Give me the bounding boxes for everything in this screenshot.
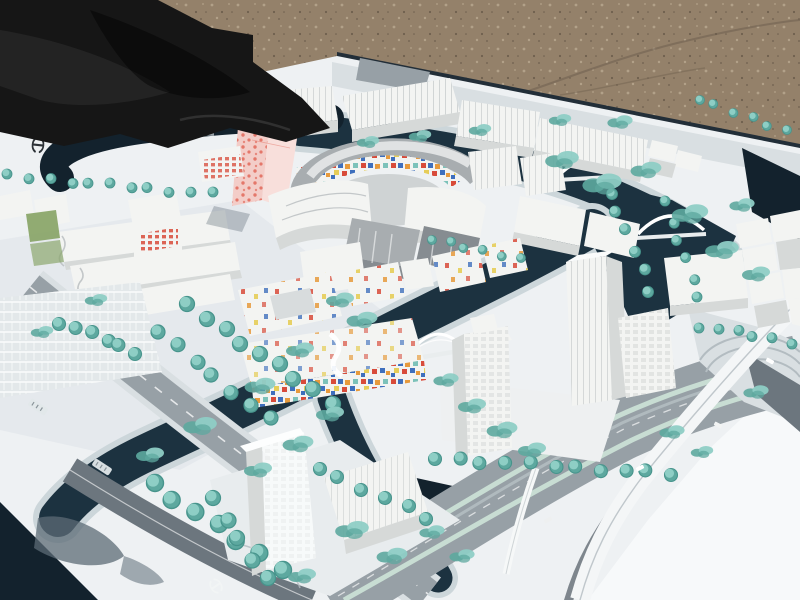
model-tree: [671, 235, 681, 245]
model-tree: [692, 292, 702, 302]
model-tree: [245, 553, 260, 568]
model-tree: [517, 254, 526, 263]
model-tree: [69, 322, 82, 335]
model-tree: [68, 178, 78, 188]
model-tree: [186, 187, 196, 197]
model-tree: [224, 386, 238, 400]
model-tree: [264, 411, 278, 425]
model-tree: [164, 187, 174, 197]
model-tree: [762, 122, 771, 131]
model-tree: [428, 236, 437, 245]
model-tree: [24, 174, 34, 184]
model-tree: [550, 461, 563, 474]
model-tree: [230, 531, 245, 546]
model-tree: [355, 484, 368, 497]
model-tree: [499, 456, 512, 469]
model-tree: [286, 372, 301, 387]
model-tree: [696, 96, 705, 105]
model-tree: [261, 571, 276, 586]
model-tree: [681, 253, 691, 263]
model-tree: [630, 246, 641, 257]
model-tree: [331, 471, 344, 484]
model-tree: [497, 252, 506, 261]
model-tree: [221, 513, 236, 528]
model-tree: [665, 469, 678, 482]
model-tree: [204, 368, 218, 382]
model-tree: [187, 504, 204, 521]
model-tree: [610, 206, 621, 217]
model-tree: [86, 326, 99, 339]
model-tree: [747, 332, 757, 342]
model-tree: [163, 492, 180, 509]
model-tree: [429, 453, 442, 466]
model-tree: [83, 178, 93, 188]
model-tree: [2, 169, 12, 179]
model-tree: [524, 456, 537, 469]
grass-strip: [26, 210, 60, 242]
model-tree: [220, 322, 235, 337]
model-tree: [151, 325, 165, 339]
model-tree: [403, 500, 416, 513]
model-tree: [569, 460, 582, 473]
model-tree: [208, 187, 218, 197]
model-tree: [379, 492, 392, 505]
model-tree: [420, 513, 433, 526]
model-tree: [478, 245, 487, 254]
model-tree: [454, 452, 467, 465]
model-tree: [709, 100, 718, 109]
model-tree: [46, 174, 56, 184]
model-tree: [206, 491, 221, 506]
model-tree: [53, 318, 66, 331]
model-tree: [749, 113, 758, 122]
model-tree: [105, 178, 115, 188]
model-tree: [620, 464, 633, 477]
model-tree: [729, 109, 738, 118]
model-tree: [643, 287, 654, 298]
model-tree: [306, 382, 321, 397]
model-tree: [620, 224, 631, 235]
model-tree: [171, 338, 185, 352]
model-tree: [447, 237, 456, 246]
model-tree: [233, 337, 248, 352]
model-tree: [147, 475, 164, 492]
model-tree: [734, 325, 744, 335]
model-tree: [244, 398, 258, 412]
model-tree: [314, 463, 327, 476]
model-tree: [142, 183, 152, 193]
model-tree: [690, 275, 700, 285]
model-tree: [660, 196, 670, 206]
model-tree: [594, 465, 607, 478]
model-tree: [640, 264, 651, 275]
model-tree: [200, 312, 215, 327]
model-tree: [273, 357, 288, 372]
model-tree: [473, 457, 486, 470]
model-tree: [694, 323, 704, 333]
model-tree: [767, 333, 777, 343]
model-tree: [129, 348, 142, 361]
model-tree: [191, 355, 205, 369]
photo-of-architecture-model: [0, 0, 800, 600]
grass-strip: [30, 240, 64, 266]
model-tree: [783, 126, 792, 135]
model-tree: [112, 339, 125, 352]
model-tree: [787, 339, 797, 349]
model-tree: [253, 347, 268, 362]
model-tree: [180, 297, 195, 312]
model-tree: [714, 324, 724, 334]
model-tree: [127, 183, 137, 193]
model-tree: [459, 244, 468, 253]
